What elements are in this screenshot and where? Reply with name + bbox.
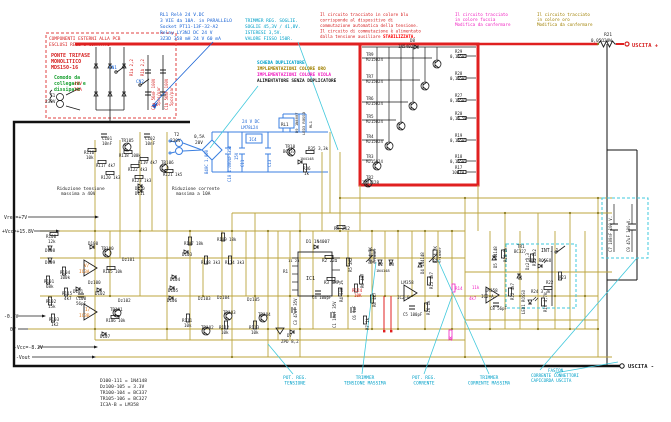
component-label: 10nF xyxy=(145,141,156,146)
component-label: 230V xyxy=(45,99,56,105)
component-label: 11 23 xyxy=(288,258,299,263)
component-label: R8 4k7 xyxy=(372,292,377,307)
t1-label: T1 xyxy=(50,93,56,99)
component-label: IC4 xyxy=(249,137,257,142)
oro-note-line: Modifica da confermare xyxy=(537,22,593,27)
component-label: D102 xyxy=(95,291,106,296)
component-label: D5 1N4148 xyxy=(493,246,498,268)
component-label: C6 1uF xyxy=(352,305,357,320)
component-label: Dz102 xyxy=(118,298,131,303)
component-label: D103 xyxy=(182,252,193,257)
component-label: R4 50K 1% xyxy=(339,280,344,302)
component-label: 1N4148 xyxy=(376,268,390,273)
component-label: massima a 40V xyxy=(61,191,96,197)
duplicator-line: ALIMENTATORE SENZA DUPLICATORE xyxy=(257,78,337,84)
component-label: D106 xyxy=(167,298,178,303)
component-label: Dz100 xyxy=(88,280,101,285)
component-label: 0,1Ω5W xyxy=(450,138,465,143)
component-label: R120 1k3 xyxy=(101,175,121,180)
component-label: R3 6K7 xyxy=(324,280,340,285)
component-label: 0,1Ω5W xyxy=(450,54,465,59)
component-label: D2 xyxy=(378,262,384,267)
component-label: R2 22Ω xyxy=(322,258,338,263)
component-label: trimmer xyxy=(372,247,377,264)
component-label: Dz103 xyxy=(198,296,211,301)
relay-note-line: Relay LY3NJ DC 24 V xyxy=(160,30,213,36)
component-label: 1N5402 xyxy=(398,44,414,49)
component-label: R35 3,3k xyxy=(308,146,329,151)
component-label: 10k xyxy=(221,330,229,335)
component-label: 0,1Ω 5W xyxy=(450,116,467,121)
component-label: D104 xyxy=(170,277,181,282)
r21-label: R21 xyxy=(604,32,612,38)
component-label: LM78L24 xyxy=(241,125,258,130)
trimmer-note-line: SOGLIE 45,3V / 41,8V. xyxy=(245,24,301,30)
component-label: LM358 xyxy=(401,280,414,285)
uscita-plus: USCITA + xyxy=(632,43,659,49)
component-label: 56pF xyxy=(76,301,87,306)
power-bus xyxy=(75,41,629,187)
component-label: 0,1Ω5W xyxy=(450,159,465,164)
component-label: MJ15024 xyxy=(366,119,383,124)
trim-tensione-label: TRIMMER xyxy=(356,375,375,381)
bridge-label: MDS150-16 xyxy=(51,65,78,71)
rail-vref: Vref=+7V xyxy=(4,215,27,221)
pot-tensione-label: TENSIONE xyxy=(284,381,306,387)
component-label: R1 xyxy=(283,269,289,274)
component-label: Dz101 xyxy=(122,257,135,262)
component-label: R108 3k3 xyxy=(201,260,221,265)
component-label: 10Ω1W xyxy=(452,170,465,175)
legend-line: TR100-104 = BC337 xyxy=(100,390,147,396)
component-label: D109 xyxy=(45,260,56,265)
fucsia-note-line: Modifica da confermare xyxy=(455,22,511,27)
component-label: R6 4k7 xyxy=(360,273,365,288)
component-label: R15 4k7 xyxy=(429,272,434,289)
component-label: RL1 xyxy=(308,120,313,128)
component-label: IC3A xyxy=(79,269,90,275)
uscita-plus-terminal xyxy=(625,42,629,46)
component-label: R105 10k xyxy=(103,269,123,274)
component-label: RL1 xyxy=(281,122,289,127)
component-label: TR104 xyxy=(258,312,271,317)
r21-value: 0,05Ω20W xyxy=(591,38,613,44)
component-label: 15V xyxy=(234,152,239,160)
component-label: R1b 2,2 xyxy=(140,59,145,76)
component-label: D1 1N4007 xyxy=(306,239,330,245)
component-label: R12 4k7 xyxy=(510,283,515,300)
relay-note-line: RL1 Relè 24 V.DC xyxy=(160,11,204,18)
component-label: TR103 xyxy=(223,310,236,315)
component-label: D105 xyxy=(168,288,179,293)
cn1-label: CN1 xyxy=(109,65,117,71)
circuit-note-line: Il circuito di commutazione è alimentato xyxy=(320,29,421,34)
component-label: C3 47uF 35V xyxy=(293,298,298,325)
component-label: Dz105 xyxy=(247,297,260,302)
component-label: C7 100nF 100 V. xyxy=(608,216,613,252)
component-label: 0,1Ω5W xyxy=(450,98,465,103)
component-label: R9 2K2 xyxy=(334,226,350,232)
component-label: C9 47uF 100 V. xyxy=(626,218,631,252)
rail-vout: -Vout xyxy=(16,355,31,361)
faston-label: CAPICORDA USCITA xyxy=(531,378,572,383)
component-label: 230V xyxy=(170,138,181,144)
legend-line: IC3A-B = LM358 xyxy=(100,402,139,408)
component-label: D4 1N4148 xyxy=(420,252,425,274)
component-label: Dz104 xyxy=(217,295,230,300)
pot-corrente-label: POT. REG. xyxy=(412,375,436,381)
component-label: R1a 2,2 xyxy=(129,59,134,76)
circuit-note-line: commutazione automatica della tensione. xyxy=(320,23,418,28)
schematic-page: RL1 Relè 24 V.DC 3 VIE da 10A. in PARALL… xyxy=(0,0,671,422)
pot-tensione-label: POT. REG. xyxy=(283,375,307,381)
t2-label: T2 xyxy=(174,132,180,138)
component-label: R119 4k7 xyxy=(138,160,158,165)
component-label: D100 xyxy=(88,241,99,246)
component-label: IC3B xyxy=(79,313,90,319)
trimmer-note-line: TRIMMER REG. SOGLIE. xyxy=(245,18,298,24)
component-label: TR101 xyxy=(110,307,123,312)
component-label: R123 1k3 xyxy=(132,178,152,183)
trimmer-note-line: ISTERESI 3,5V. xyxy=(245,30,282,36)
callout-boxes xyxy=(506,198,648,308)
component-label: R16 4,7k xyxy=(543,292,548,312)
pot-corrente-label: CORRENTE xyxy=(413,381,435,387)
duplicator-line: SCHEDA DUPLICATORE xyxy=(257,60,305,66)
component-label: MJ15024 xyxy=(366,79,383,84)
component-label: D111 xyxy=(135,191,145,196)
component-label: MJ15024 xyxy=(366,57,383,62)
component-label: D7 xyxy=(287,333,293,338)
circuit-note-line: dalla tensione ausiliare xyxy=(320,34,381,39)
component-label: R7 1k xyxy=(365,317,370,330)
component-label: 5pcs/par xyxy=(169,86,174,106)
component-label: I/ xyxy=(85,307,91,313)
schematic-canvas: RL1 Relè 24 V.DC 3 VIE da 10A. in PARALL… xyxy=(0,0,671,422)
trim-corrente-label: CORRENTE MASSIMA xyxy=(468,381,511,387)
component-label: LED1 ROSSO xyxy=(521,289,526,314)
rail-vcc: +Vcc=+15.8V xyxy=(2,229,34,235)
component-label: D108 xyxy=(45,248,56,253)
uscita-minus-terminal xyxy=(620,364,624,368)
rail-0v: 0V xyxy=(10,327,16,333)
component-label: R121 1k5 xyxy=(163,172,183,177)
uscita-minus: USCITA - xyxy=(628,364,654,370)
supply-rails xyxy=(18,216,99,359)
component-label: MJ15024 xyxy=(366,159,383,164)
component-label: TR105 xyxy=(121,138,134,143)
bottom-callouts: POT. REG. TENSIONE TRIMMER TENSIONE MASS… xyxy=(283,368,579,387)
component-label: 25A xyxy=(74,87,82,93)
component-label: 4k7 xyxy=(469,296,477,301)
component-label: 12k xyxy=(48,239,56,244)
component-label: 5pcs/par xyxy=(156,86,161,106)
component-label: 1k2 xyxy=(51,322,59,327)
component-label: LED3 ROSSO xyxy=(301,111,306,135)
legend-line: D100-111 = 1N4148 xyxy=(100,378,147,384)
component-label: 10k xyxy=(251,330,259,335)
component-label: IC2-B xyxy=(397,295,410,300)
component-label: C8 56pF xyxy=(490,306,507,311)
legend-line: Dz100-105 = 3.3V xyxy=(100,384,144,390)
component-label: 20V xyxy=(195,140,203,146)
component-label: R117 4k7 xyxy=(96,163,116,168)
component-label: 10nF xyxy=(102,141,113,146)
component-label: MJ15024 xyxy=(366,139,383,144)
component-label: 11k xyxy=(472,285,480,290)
component-legend: D100-111 = 1N4148 Dz100-105 = 3.3V TR100… xyxy=(100,378,147,408)
component-label: 4k7 xyxy=(64,296,72,301)
component-label: C1 10uF 35V xyxy=(332,301,337,328)
heatsink-note: Comodo da xyxy=(54,75,80,81)
component-label: 68k xyxy=(46,284,54,289)
component-label: 10k xyxy=(184,323,192,328)
component-label: R23 xyxy=(559,275,567,280)
component-label: R114 3k3 xyxy=(225,260,245,265)
component-label: C13 xyxy=(267,159,272,167)
component-label: D8 xyxy=(410,38,416,43)
component-label: 2SD1128 xyxy=(362,180,379,185)
component-label: D9 1N4007 xyxy=(294,112,299,133)
rail-neg05: -0.5V xyxy=(4,314,19,320)
relay-note-line: Socket PT11-13F-32-A2 xyxy=(160,24,218,30)
relay-note-line: 3 VIE da 10A. in PARALLELO xyxy=(160,18,232,24)
component-label: C11 xyxy=(240,159,245,167)
component-label: 10K xyxy=(354,293,362,298)
component-label: D107 xyxy=(100,334,111,339)
component-label: R109 18k xyxy=(217,237,237,242)
legend-line: TR105-106 = BC327 xyxy=(100,396,147,402)
circuit-note-line: Il circuito tracciato in colore blu xyxy=(320,12,409,17)
component-label: 2k xyxy=(448,336,453,341)
component-label: 1k xyxy=(304,171,310,176)
duplicator-line: IMPLEMENTAZIONI COLORE ORO xyxy=(257,66,326,72)
trim-tensione-label: TENSIONE MASSIMA xyxy=(344,381,387,387)
component-label: D6 xyxy=(518,275,523,280)
trim-corrente-label: TRIMMER xyxy=(480,375,499,381)
duplicator-line: IMPLEMENTAZIONI COLORE VIOLA xyxy=(257,72,331,78)
top-annotations: RL1 Relè 24 V.DC 3 VIE da 10A. in PARALL… xyxy=(160,11,593,42)
cn2-label: CN2 xyxy=(136,79,144,85)
component-label: BC337 xyxy=(283,149,296,154)
component-label: R16 1k xyxy=(426,300,431,315)
ext-box-title: ESCLUSI RELE e CONTATTI xyxy=(49,42,110,48)
component-label: trimmer xyxy=(437,246,442,263)
component-label: 24 V DC xyxy=(242,119,260,124)
component-label: D101 xyxy=(73,289,84,294)
circuit-note-line: corrisponde al dispositivo di xyxy=(320,18,394,23)
component-label: TR102 xyxy=(201,325,214,330)
component-label: 10k xyxy=(86,155,94,160)
component-label: 0,1Ω5W xyxy=(450,76,465,81)
component-label: TR100 xyxy=(101,246,114,251)
relay-note-line: 3Z3D 358 mH 24 V 60 mA xyxy=(160,36,221,42)
component-label: 100k xyxy=(60,275,71,280)
component-label: IC1 xyxy=(306,276,315,282)
int1-label: INT. 1 xyxy=(541,248,558,254)
component-label: massima a 10A xyxy=(176,191,211,197)
ext-box-title: COMPONENTI ESTERNI ALLA PCB xyxy=(49,36,121,42)
component-label: C5 100pF xyxy=(403,312,423,317)
component-label: C10 1.000uF 35V xyxy=(227,145,232,182)
trimmer-note-line: VALORE FISSO 150R. xyxy=(245,36,293,42)
component-label: R122 4k3 xyxy=(128,167,148,172)
component-label: IC2-A xyxy=(481,294,494,299)
component-label: 15k xyxy=(48,304,56,309)
component-label: LM358 xyxy=(485,288,498,293)
component-label: R10 1k xyxy=(503,247,508,262)
component-label: R107 18k xyxy=(184,241,204,246)
component-label: 40V xyxy=(74,81,82,87)
component-label: C4 100pF xyxy=(312,295,332,300)
component-label: R22 xyxy=(546,280,554,285)
component-label: LED2 ROSSO xyxy=(526,258,552,263)
component-label: R118 100k xyxy=(119,153,141,158)
rail-negvcc: -Vcc=-8.2V xyxy=(14,345,43,351)
component-label: TR106 xyxy=(161,160,174,165)
component-label: V/ xyxy=(84,263,90,269)
component-label: ZPD 8,2 xyxy=(281,339,299,344)
component-label: D3 xyxy=(389,262,395,267)
component-label: 0,5A xyxy=(194,134,205,140)
component-label: R14 xyxy=(455,286,463,291)
component-label: B40C 1.000 xyxy=(204,149,209,174)
component-label: R106 10k xyxy=(106,318,126,323)
component-label: MJ15024 xyxy=(366,101,383,106)
component-label: R5 2K2 xyxy=(348,257,353,272)
duplicator-notes: SCHEDA DUPLICATORE IMPLEMENTAZIONI COLOR… xyxy=(257,60,337,84)
component-label: 1N4148 xyxy=(300,156,314,161)
